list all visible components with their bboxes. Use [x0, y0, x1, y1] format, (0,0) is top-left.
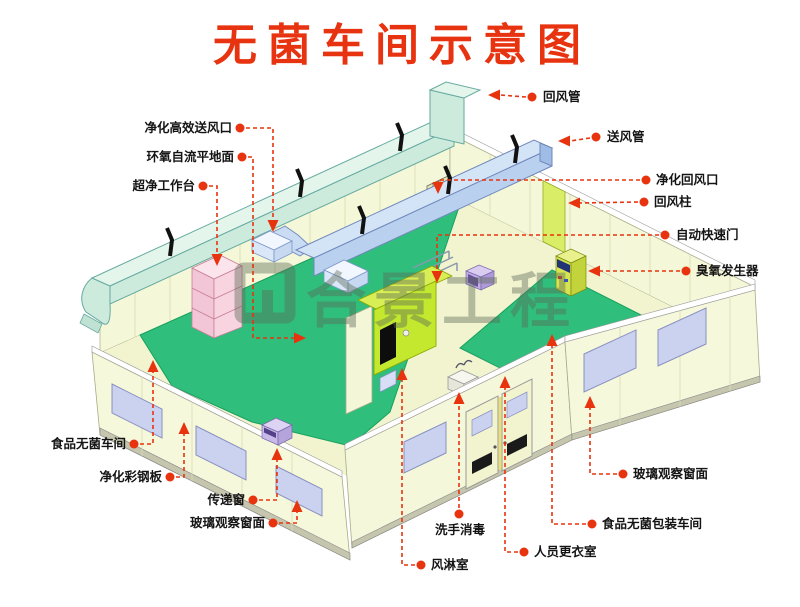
callout-label: 自动快速门: [676, 227, 739, 242]
callout-label: 玻璃观察窗面: [633, 466, 709, 481]
callout-label: 回风柱: [654, 194, 692, 209]
callout-label: 送风管: [606, 129, 645, 144]
callout-label: 风淋室: [431, 557, 469, 572]
callout-label: 人员更衣室: [534, 544, 597, 559]
sterile-workshop-diagram: 无菌车间示意图: [0, 0, 800, 607]
callout-label: 食品无菌包装车间: [601, 516, 702, 531]
callout-label: 净化高效送风口: [144, 120, 232, 135]
callout-supply-air-duct: 送风管: [558, 129, 645, 147]
callout-label: 食品无菌车间: [50, 436, 126, 451]
callout-label: 回风管: [543, 89, 581, 104]
callout-label: 传递窗: [206, 492, 245, 507]
watermark-text: 合景工程: [306, 267, 578, 337]
callout-return-air-duct: 回风管: [488, 89, 581, 104]
callout-label: 净化回风口: [656, 172, 719, 187]
callout-label: 玻璃观察窗面: [190, 515, 266, 530]
callout-label: 臭氧发生器: [696, 263, 759, 278]
callout-label: 超净工作台: [131, 178, 195, 193]
diagram-canvas: 无菌车间示意图: [0, 0, 800, 607]
page-title: 无菌车间示意图: [213, 20, 591, 71]
return-air-column-part: [543, 181, 565, 253]
callout-label: 净化彩钢板: [99, 469, 162, 484]
callout-label: 洗手消毒: [435, 522, 486, 537]
callout-label: 环氧自流平地面: [146, 149, 234, 164]
